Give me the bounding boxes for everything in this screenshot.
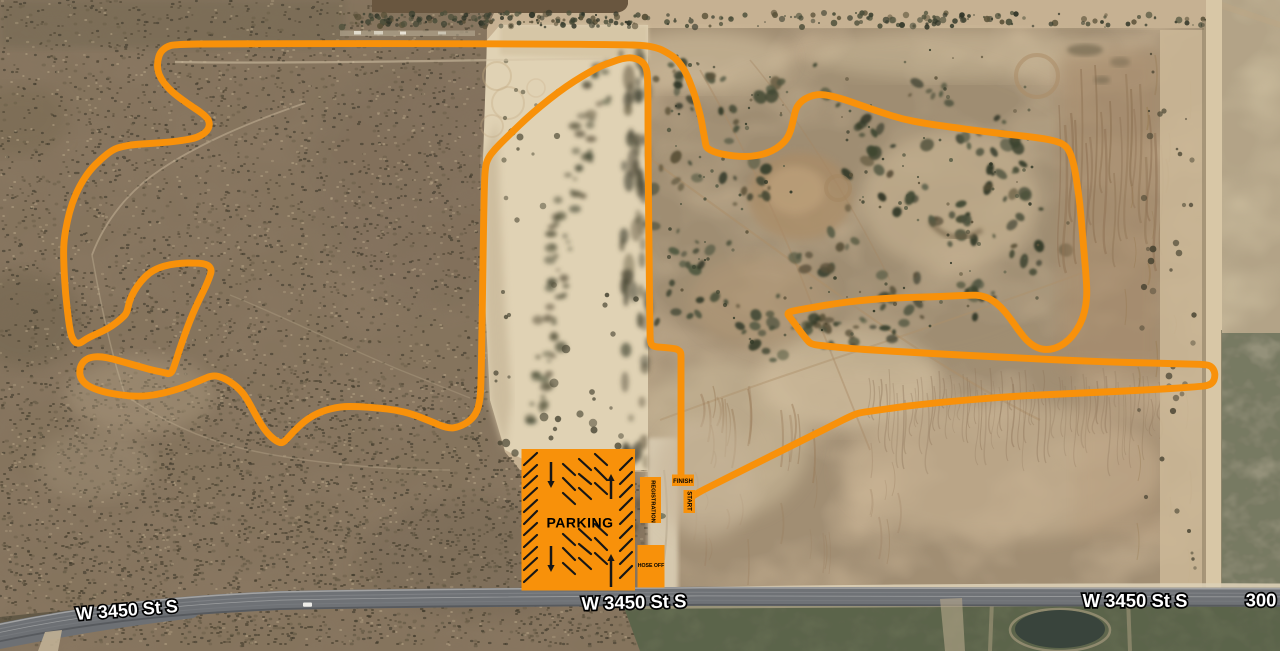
svg-text:W 3450 St S: W 3450 St S — [1083, 590, 1188, 611]
svg-text:W 3450 St S: W 3450 St S — [581, 590, 686, 614]
svg-text:FINISH: FINISH — [673, 479, 693, 485]
svg-text:REGISTRATION: REGISTRATION — [650, 480, 656, 523]
svg-text:HOSE OFF: HOSE OFF — [638, 563, 665, 569]
svg-text:START: START — [685, 491, 691, 511]
svg-text:PARKING: PARKING — [546, 515, 613, 531]
svg-text:300: 300 — [1246, 590, 1277, 611]
